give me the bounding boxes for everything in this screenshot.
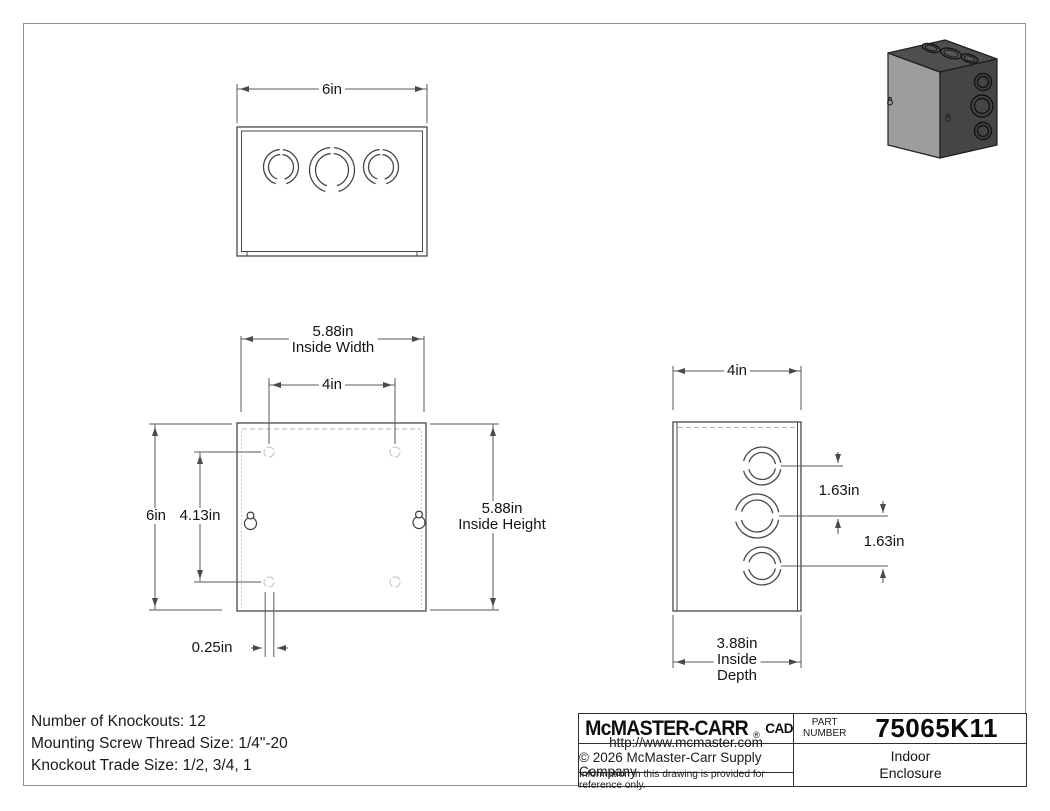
front-view [237,423,426,611]
dim-inside-depth-caption2: Depth [717,668,758,684]
product-name-cell: Indoor Enclosure [794,744,1027,786]
dim-knockout-spacing-1: 1.63in [816,483,863,499]
dimension-arrows [155,89,883,662]
dim-inside-depth-value: 3.88in [717,636,758,652]
dimension-lines [149,84,888,668]
part-label-line1: PART [803,718,846,729]
spec-thread-size: Mounting Screw Thread Size: 1/4"-20 [31,733,288,755]
spec-knockout-count: Number of Knockouts: 12 [31,711,288,733]
dim-inside-height: 5.88in Inside Height [455,501,549,533]
mounting-hole [264,447,400,587]
dim-inside-width-value: 5.88in [292,324,375,340]
part-number-label: PART NUMBER [803,718,846,739]
dim-hole-spacing-h: 4in [319,377,345,393]
disclaimer: Information in this drawing is provided … [579,773,794,786]
dim-hole-offset: 0.25in [189,640,236,656]
dim-top-width: 6in [319,82,345,98]
technical-drawing [0,0,1050,811]
dim-inside-depth: 3.88in Inside Depth [714,636,761,684]
dim-inside-height-caption: Inside Height [458,517,546,533]
disclaimer-text: Information in this drawing is provided … [579,769,793,791]
part-label-line2: NUMBER [803,729,846,740]
cad-label: CAD [765,721,793,736]
dim-inside-depth-caption1: Inside [717,652,758,668]
top-view [237,127,427,256]
isometric-view [888,40,997,158]
part-number-cell: PART NUMBER 75065K11 [794,714,1027,744]
dim-outside-depth: 4in [724,363,750,379]
website-url: http://www.mcmaster.com [609,736,763,751]
spec-notes: Number of Knockouts: 12 Mounting Screw T… [31,711,288,777]
dim-inside-width-caption: Inside Width [292,340,375,356]
drawing-page: 6in 5.88in Inside Width 4in 6in 4.13in 5… [0,0,1050,811]
product-name-line2: Enclosure [879,765,941,782]
dim-outside-height: 6in [143,508,169,524]
dim-hole-spacing-v: 4.13in [177,508,224,524]
dim-inside-height-value: 5.88in [458,501,546,517]
title-block: McMASTER-CARR ® CAD http://www.mcmaster.… [578,713,1027,787]
product-name-line1: Indoor [891,748,931,765]
dim-knockout-spacing-2: 1.63in [861,534,908,550]
dim-inside-width: 5.88in Inside Width [289,324,378,356]
keyhole-slot [245,511,426,529]
knockout-ring [735,447,781,585]
spec-trade-size: Knockout Trade Size: 1/2, 3/4, 1 [31,755,288,777]
knockout-ring [264,148,399,193]
part-number: 75065K11 [846,713,1027,744]
